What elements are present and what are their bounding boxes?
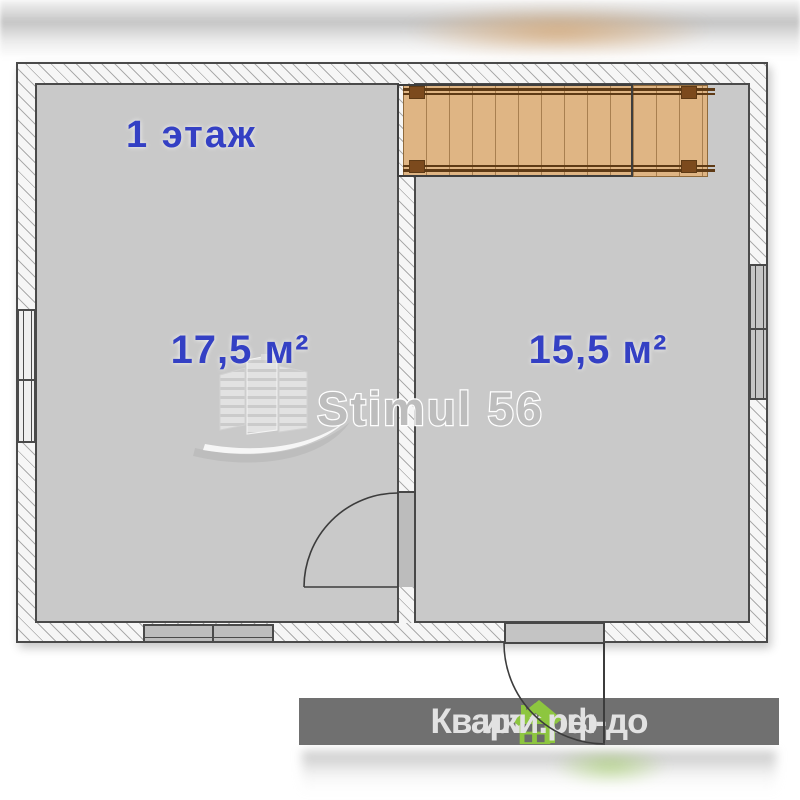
room-area-label-right: 15,5 м² — [498, 328, 698, 373]
floor-plan-page: Stimul 56 1 этаж 17,5 м² 15,5 м² Квартир… — [0, 0, 800, 800]
site-watermark-banner: Квартиры-до ики.рф — [299, 698, 779, 745]
window-divider — [751, 328, 766, 330]
exterior-door-leaf — [603, 643, 605, 743]
room-area-label-left: 17,5 м² — [140, 328, 340, 373]
window-left-wall — [17, 309, 36, 443]
window-bottom-wall — [143, 624, 274, 643]
stair-post — [681, 86, 697, 99]
banner-text-right: ики.рф — [481, 702, 597, 742]
banner-reflection-green — [552, 753, 668, 785]
window-right-wall — [749, 264, 768, 400]
banner-reflection — [302, 751, 776, 793]
top-blur-stair-tint — [408, 6, 708, 52]
interior-door-opening — [397, 491, 416, 589]
stair-post — [681, 160, 697, 173]
window-divider — [212, 626, 214, 641]
floor-title: 1 этаж — [126, 114, 257, 157]
exterior-door-opening — [504, 622, 605, 644]
logo-text: Stimul 56 — [317, 382, 544, 435]
stairwell-opening-outline — [397, 84, 633, 177]
interior-wall-lower — [397, 587, 416, 623]
window-divider — [19, 379, 34, 381]
